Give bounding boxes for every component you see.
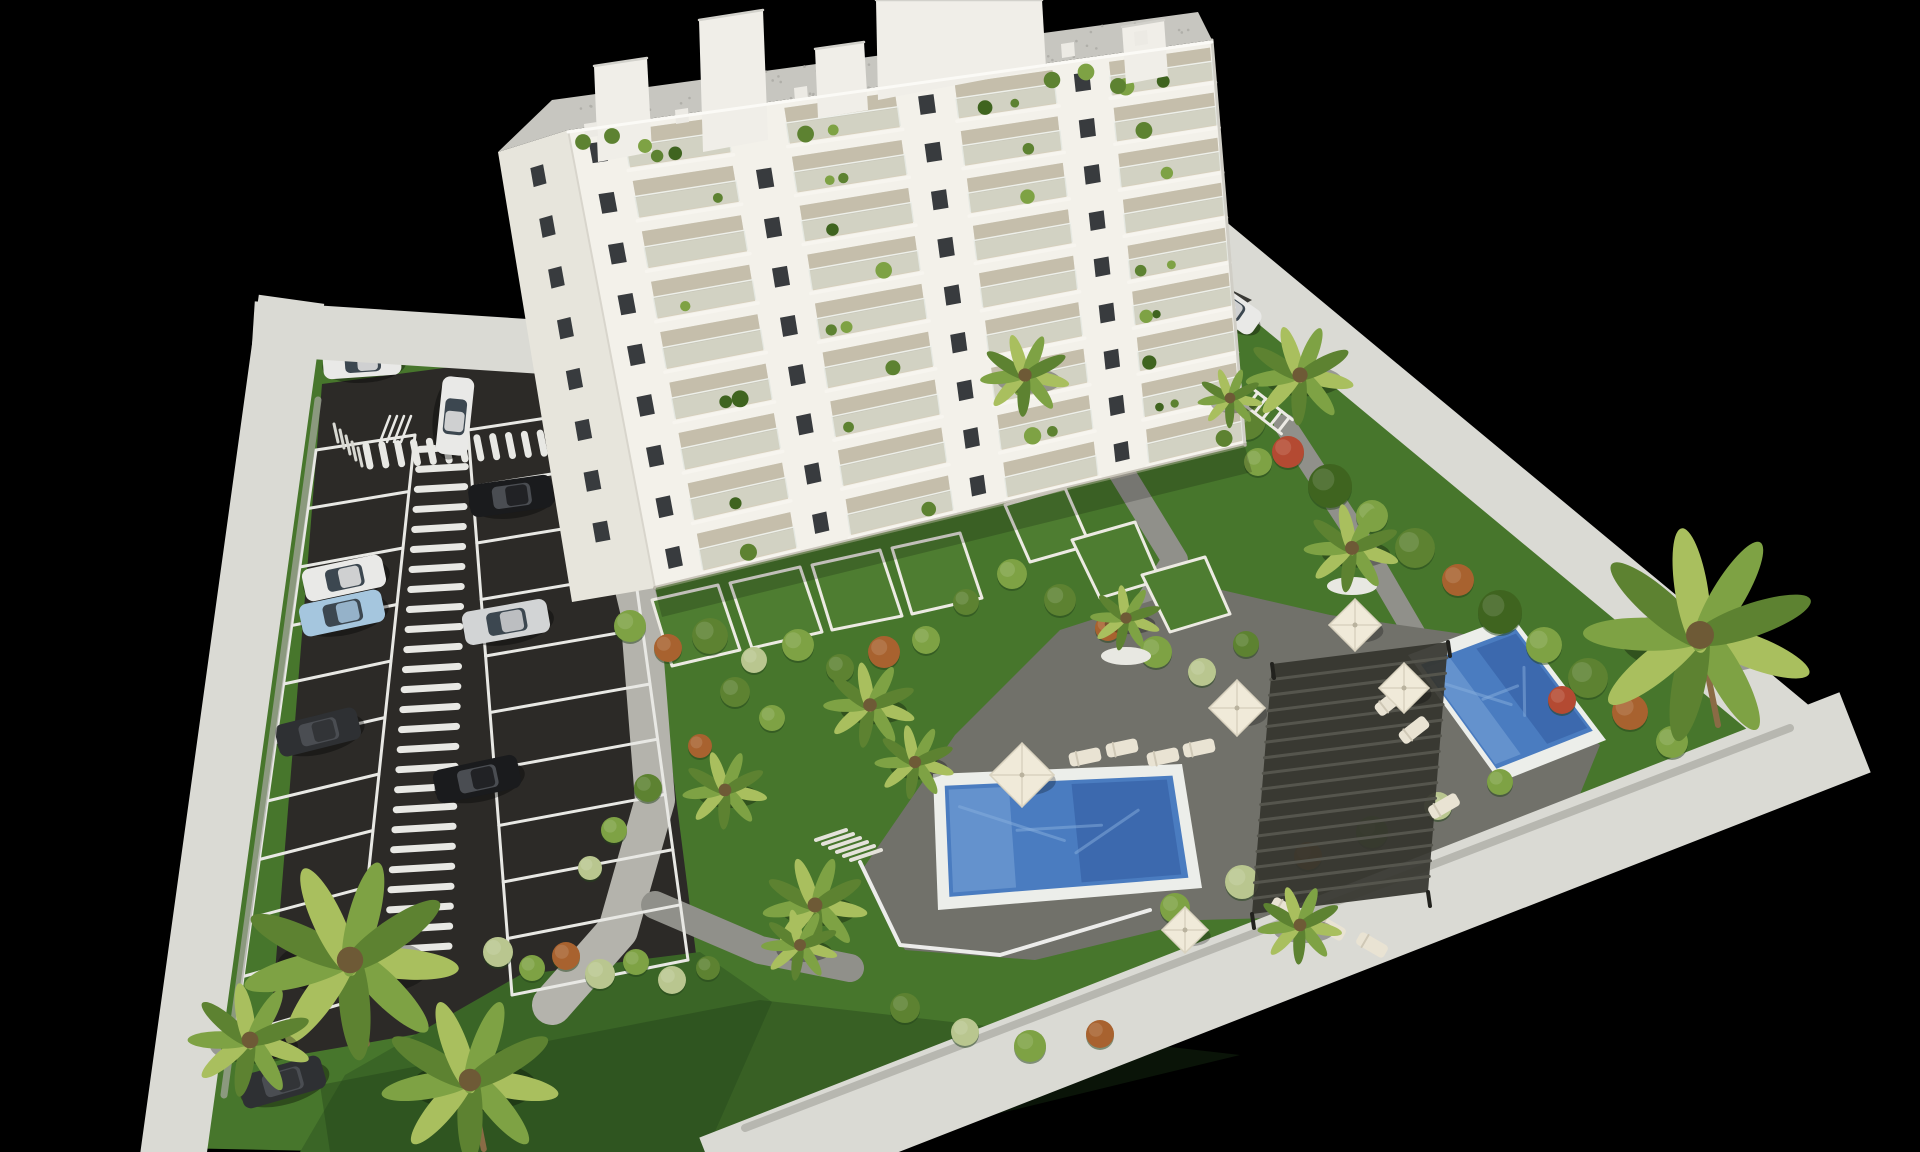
shrub-highlight xyxy=(1551,689,1565,703)
shrub-highlight xyxy=(723,680,738,695)
shrub-highlight xyxy=(1000,562,1015,577)
balcony-plant xyxy=(841,321,853,333)
shrub-highlight xyxy=(626,952,639,965)
palm-crown xyxy=(719,784,732,797)
balcony-plant xyxy=(740,544,757,561)
crosswalk-stripe xyxy=(540,433,544,453)
facade-window xyxy=(1104,349,1120,370)
roof-gravel-dot xyxy=(1047,55,1050,58)
parasol-pole xyxy=(1020,773,1025,778)
pergola-post xyxy=(1448,642,1450,656)
roof-gravel-dot xyxy=(809,92,812,95)
shrub-highlight xyxy=(637,777,651,791)
palm-crown xyxy=(863,698,877,712)
balcony-plant xyxy=(1139,310,1152,323)
balcony-plant xyxy=(1152,310,1160,318)
balcony-plant xyxy=(1171,399,1179,407)
zebra-stripe xyxy=(412,567,462,570)
balcony-plant xyxy=(1216,430,1233,447)
balcony-plant xyxy=(838,173,848,183)
zebra-stripe xyxy=(405,666,458,669)
shrub-highlight xyxy=(555,945,569,959)
balcony-plant xyxy=(1161,167,1173,179)
crosswalk-stripe xyxy=(398,444,402,464)
shrub-highlight xyxy=(690,736,702,748)
zebra-stripe xyxy=(411,586,461,589)
balcony-plant xyxy=(1167,260,1176,269)
shrub-highlight xyxy=(915,629,929,643)
roof-tower xyxy=(699,10,768,152)
roof-gravel-dot xyxy=(580,107,583,110)
roof-gravel-dot xyxy=(1086,44,1089,47)
shrub-highlight xyxy=(956,592,969,605)
balcony-plant xyxy=(668,146,682,160)
balcony-plant xyxy=(1142,355,1156,369)
facade-window xyxy=(788,364,806,386)
zebra-stripe xyxy=(416,507,464,510)
shrub-highlight xyxy=(522,958,535,971)
balcony-plant xyxy=(1047,426,1058,437)
roof-gravel-dot xyxy=(790,97,793,100)
zebra-stripe xyxy=(402,726,457,729)
roof-gravel-dot xyxy=(779,81,782,84)
crosswalk-stripe xyxy=(429,441,433,461)
car-roof xyxy=(499,609,525,633)
water-reflection xyxy=(1524,667,1525,715)
rooftop-terrace-plant xyxy=(575,134,591,150)
palm-crown xyxy=(1120,612,1131,623)
rooftop-terrace-plant xyxy=(1078,64,1095,81)
facade-window xyxy=(957,380,974,402)
facade-window xyxy=(796,413,814,435)
crosswalk-stripe xyxy=(366,446,370,466)
shrub-highlight xyxy=(1047,587,1063,603)
crosswalk-stripe xyxy=(524,434,528,454)
facade-window xyxy=(1109,395,1125,416)
rooftop-terrace-plant xyxy=(1110,78,1126,94)
parasol-pole xyxy=(1353,623,1358,628)
site-plan-render xyxy=(0,0,1920,1152)
balcony-plant xyxy=(828,125,839,136)
facade-window xyxy=(804,462,821,484)
facade-window xyxy=(1089,210,1106,231)
zebra-stripe xyxy=(395,826,453,829)
crosswalk-stripe xyxy=(493,437,497,457)
pool-water-shallow xyxy=(949,787,1016,893)
roof-chimney xyxy=(1061,42,1075,58)
palm-crown xyxy=(794,939,806,951)
balcony-plant xyxy=(1155,403,1164,412)
palm-crown xyxy=(909,756,921,768)
shrub-highlight xyxy=(1490,772,1503,785)
shrub-highlight xyxy=(1163,896,1178,911)
shrub-highlight xyxy=(604,820,617,833)
roof-gravel-dot xyxy=(1101,25,1104,28)
shrub-highlight xyxy=(588,962,603,977)
zebra-stripe xyxy=(391,886,451,890)
facade-window xyxy=(931,189,949,210)
car-roof xyxy=(505,484,529,507)
shrub-highlight xyxy=(657,637,671,651)
balcony-plant xyxy=(885,360,900,375)
facade-window xyxy=(963,427,980,449)
rooftop-terrace-plant xyxy=(638,139,652,153)
palm-crown xyxy=(808,898,823,913)
zebra-stripe xyxy=(392,866,451,870)
facade-window xyxy=(780,315,798,337)
roof-gravel-dot xyxy=(1051,59,1054,62)
palm-crown xyxy=(459,1069,481,1091)
crosswalk-stripe xyxy=(382,445,386,465)
shrub-highlight xyxy=(762,708,775,721)
zebra-stripe xyxy=(408,626,460,629)
balcony-plant xyxy=(825,175,835,185)
shrub-highlight xyxy=(580,858,592,870)
shrub-highlight xyxy=(1228,868,1245,885)
balcony-plant xyxy=(1010,99,1019,108)
zebra-stripe xyxy=(396,806,454,809)
roof-gravel-dot xyxy=(688,97,691,100)
balcony-plant xyxy=(680,301,690,311)
facade-window xyxy=(1099,303,1116,324)
facade-window xyxy=(764,217,782,239)
roof-gravel-dot xyxy=(680,102,683,105)
crosswalk-stripe xyxy=(414,443,418,463)
roof-gravel-dot xyxy=(803,65,806,68)
roof-gravel-dot xyxy=(812,93,815,96)
shrub-highlight xyxy=(1482,594,1504,616)
facade-window xyxy=(812,512,829,534)
facade-window xyxy=(1114,441,1130,462)
palm-crown xyxy=(1294,919,1307,932)
shrub-highlight xyxy=(1089,1023,1103,1037)
parasol-pole xyxy=(1235,706,1240,711)
parasol-pole xyxy=(1402,686,1407,691)
shrub-highlight xyxy=(1572,662,1592,682)
balcony-plant xyxy=(1135,265,1147,277)
facade-window xyxy=(1094,256,1111,277)
facade-window xyxy=(772,266,790,288)
balcony-plant xyxy=(921,502,936,517)
shrub-highlight xyxy=(954,1021,968,1035)
roof-gravel-dot xyxy=(1178,29,1181,32)
roof-gravel-dot xyxy=(1090,31,1093,34)
lap-pool xyxy=(933,764,1202,910)
shrub-highlight xyxy=(698,958,710,970)
balcony-plant xyxy=(875,262,892,279)
shrub-highlight xyxy=(871,639,887,655)
roof-gravel-dot xyxy=(589,105,592,108)
facade-window xyxy=(1084,164,1101,184)
shrub-highlight xyxy=(1275,439,1291,455)
pergola-post xyxy=(1428,892,1430,906)
palm-crown xyxy=(1018,368,1031,381)
facade-window xyxy=(756,168,774,189)
palm-crown xyxy=(1345,541,1359,555)
zebra-stripe xyxy=(413,547,462,550)
shrub-highlight xyxy=(1312,468,1334,490)
shrub-highlight xyxy=(1017,1033,1033,1049)
facade-window xyxy=(925,142,943,163)
balcony-plant xyxy=(732,390,749,407)
balcony-plant xyxy=(1137,123,1151,137)
balcony-plant xyxy=(729,497,741,509)
balcony-plant xyxy=(826,223,839,236)
zebra-stripe xyxy=(417,487,464,490)
balcony-plant xyxy=(651,150,663,162)
balcony-plant xyxy=(1020,189,1034,203)
rooftop-terrace-plant xyxy=(604,128,620,144)
shrub-highlight xyxy=(1445,567,1461,583)
roof-gravel-dot xyxy=(1187,29,1190,32)
crosswalk-stripe xyxy=(509,436,513,456)
zebra-stripe xyxy=(400,746,456,749)
pergola-post xyxy=(1252,914,1254,928)
palm-crown xyxy=(1225,393,1236,404)
roof-gravel-dot xyxy=(771,79,774,82)
roof-gravel-dot xyxy=(1095,47,1098,50)
facade-window xyxy=(937,237,954,258)
facade-window xyxy=(950,332,967,353)
shrub-highlight xyxy=(1530,631,1548,649)
balcony-plant xyxy=(826,324,837,335)
architectural-render: Aerial 3D architectural rendering of a w… xyxy=(0,0,1920,1152)
facade-window xyxy=(1079,118,1096,138)
pergola-post xyxy=(1272,664,1274,678)
roof-gravel-dot xyxy=(1075,40,1078,43)
roof-gravel-dot xyxy=(1181,31,1184,34)
roof-gravel-dot xyxy=(777,75,780,78)
shrub-highlight xyxy=(617,613,633,629)
rooftop-terrace-plant xyxy=(1044,72,1061,89)
shrub-highlight xyxy=(829,657,843,671)
round-planter xyxy=(1101,647,1151,665)
crosswalk-stripe xyxy=(477,438,481,458)
shrub-highlight xyxy=(1399,532,1419,552)
palm-crown xyxy=(1686,621,1714,649)
facade-window xyxy=(918,94,936,115)
shrub-highlight xyxy=(1191,661,1205,675)
car-roof xyxy=(444,410,465,432)
shrub-highlight xyxy=(696,622,714,640)
palm-crown xyxy=(337,947,363,973)
roof-chimney xyxy=(1134,30,1148,46)
shrub-highlight xyxy=(661,969,675,983)
palm-crown xyxy=(1292,367,1307,382)
zebra-stripe xyxy=(419,467,466,470)
balcony-plant xyxy=(843,422,854,433)
zebra-stripe xyxy=(394,846,453,850)
roof-gravel-dot xyxy=(868,63,871,66)
facade-window xyxy=(969,475,986,497)
zebra-stripe xyxy=(404,686,458,689)
shrub-highlight xyxy=(744,650,757,663)
zebra-stripe xyxy=(415,527,464,530)
balcony-plant xyxy=(1023,143,1035,155)
parasol-pole xyxy=(1183,928,1188,933)
shrub-highlight xyxy=(785,632,801,648)
zebra-stripe xyxy=(407,646,459,649)
zebra-stripe xyxy=(403,706,457,709)
balcony-plant xyxy=(978,100,993,115)
balcony-plant xyxy=(713,193,723,203)
roof-tower xyxy=(815,42,868,118)
pool-water-deep xyxy=(1072,780,1182,883)
shrub-highlight xyxy=(1236,634,1249,647)
balcony-plant xyxy=(797,126,814,143)
zebra-stripe xyxy=(409,606,460,609)
palm-crown xyxy=(242,1032,259,1049)
facade-window xyxy=(944,284,961,305)
shrub-highlight xyxy=(893,996,908,1011)
balcony-plant xyxy=(1024,427,1041,444)
balcony-plant xyxy=(719,395,732,408)
shrub-highlight xyxy=(486,940,501,955)
